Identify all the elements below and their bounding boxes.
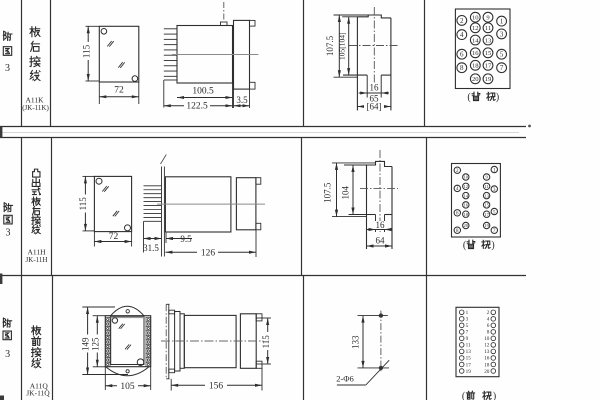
svg-text:3: 3 <box>5 349 10 360</box>
svg-text:13: 13 <box>466 349 472 355</box>
svg-text:10: 10 <box>472 15 479 22</box>
svg-text:): ) <box>491 240 494 251</box>
svg-text:3.5: 3.5 <box>236 95 248 105</box>
svg-text:20: 20 <box>484 369 490 375</box>
svg-text:105: 105 <box>120 382 135 392</box>
svg-text:10: 10 <box>484 336 490 342</box>
svg-text:133: 133 <box>351 335 361 349</box>
svg-text:16: 16 <box>464 203 469 208</box>
svg-text:18: 18 <box>484 362 490 368</box>
svg-text:149: 149 <box>81 337 91 351</box>
svg-text:115: 115 <box>261 335 271 349</box>
svg-text:20: 20 <box>472 76 479 83</box>
svg-text:3: 3 <box>6 227 11 238</box>
svg-text:20: 20 <box>464 223 469 228</box>
svg-text:19: 19 <box>485 76 492 83</box>
svg-text:9.5: 9.5 <box>180 234 192 244</box>
svg-text:15: 15 <box>466 356 472 362</box>
svg-text:3: 3 <box>466 317 469 323</box>
svg-text:156: 156 <box>209 381 224 391</box>
svg-text:8: 8 <box>460 64 464 72</box>
svg-text:5: 5 <box>500 51 504 59</box>
svg-text:): ) <box>493 391 496 400</box>
svg-text:): ) <box>496 92 499 103</box>
svg-text:16: 16 <box>370 83 380 93</box>
svg-text:JK-11H: JK-11H <box>26 256 48 264</box>
svg-text:5: 5 <box>466 323 469 329</box>
svg-text:107.5: 107.5 <box>323 182 333 203</box>
svg-text:16: 16 <box>472 50 479 57</box>
svg-text:JK-11Q: JK-11Q <box>26 388 50 397</box>
svg-text:1: 1 <box>466 310 469 316</box>
svg-text:2: 2 <box>487 310 490 316</box>
svg-text:31.5: 31.5 <box>143 243 159 253</box>
svg-text:64: 64 <box>376 235 386 245</box>
svg-text:105[104]: 105[104] <box>337 32 346 60</box>
svg-text:[64]: [64] <box>367 102 382 112</box>
svg-text:4: 4 <box>487 317 490 323</box>
svg-text:9: 9 <box>466 336 469 342</box>
svg-text:10: 10 <box>464 175 469 180</box>
svg-text:3: 3 <box>5 63 10 74</box>
svg-text:125: 125 <box>90 337 100 351</box>
svg-text:14: 14 <box>464 193 469 198</box>
svg-text:11: 11 <box>485 25 491 32</box>
svg-text:11: 11 <box>466 343 471 349</box>
svg-text:115: 115 <box>78 197 88 211</box>
svg-text:13: 13 <box>484 193 489 198</box>
svg-text:18: 18 <box>464 212 469 217</box>
svg-text:6: 6 <box>487 323 490 329</box>
svg-text:13: 13 <box>484 349 490 355</box>
svg-text:15: 15 <box>484 203 489 208</box>
svg-text:14: 14 <box>472 37 479 44</box>
svg-text:12: 12 <box>464 184 469 189</box>
svg-text:17: 17 <box>485 63 492 70</box>
svg-text:12: 12 <box>484 343 490 349</box>
svg-text:15: 15 <box>485 50 492 57</box>
svg-text:100.5: 100.5 <box>192 86 214 96</box>
svg-text:11: 11 <box>484 184 489 189</box>
svg-text:18: 18 <box>472 63 479 70</box>
svg-text:12: 12 <box>472 25 479 32</box>
svg-text:2: 2 <box>460 17 464 25</box>
svg-text:122.5: 122.5 <box>186 101 208 111</box>
svg-text:72: 72 <box>114 86 124 96</box>
svg-text:19: 19 <box>466 369 472 375</box>
svg-text:17: 17 <box>466 362 472 368</box>
svg-text:104: 104 <box>341 185 351 199</box>
svg-text:6: 6 <box>460 51 464 59</box>
svg-text:7: 7 <box>500 64 504 72</box>
svg-text:107.5: 107.5 <box>325 35 335 56</box>
svg-text:126: 126 <box>201 248 216 258</box>
svg-text:72: 72 <box>109 232 119 242</box>
svg-text:17: 17 <box>484 212 489 217</box>
svg-text:16: 16 <box>484 356 490 362</box>
svg-text:(JK-11K): (JK-11K) <box>22 104 49 112</box>
svg-text:3: 3 <box>500 30 504 38</box>
svg-text:7: 7 <box>466 330 469 336</box>
svg-text:16: 16 <box>376 220 386 230</box>
svg-text:13: 13 <box>485 37 492 44</box>
svg-text:1: 1 <box>500 18 504 26</box>
svg-text:2-Φ6: 2-Φ6 <box>336 373 354 383</box>
svg-text:4: 4 <box>460 31 464 39</box>
svg-text:115: 115 <box>81 44 91 58</box>
svg-text:19: 19 <box>484 223 489 228</box>
svg-text:8: 8 <box>487 330 490 336</box>
